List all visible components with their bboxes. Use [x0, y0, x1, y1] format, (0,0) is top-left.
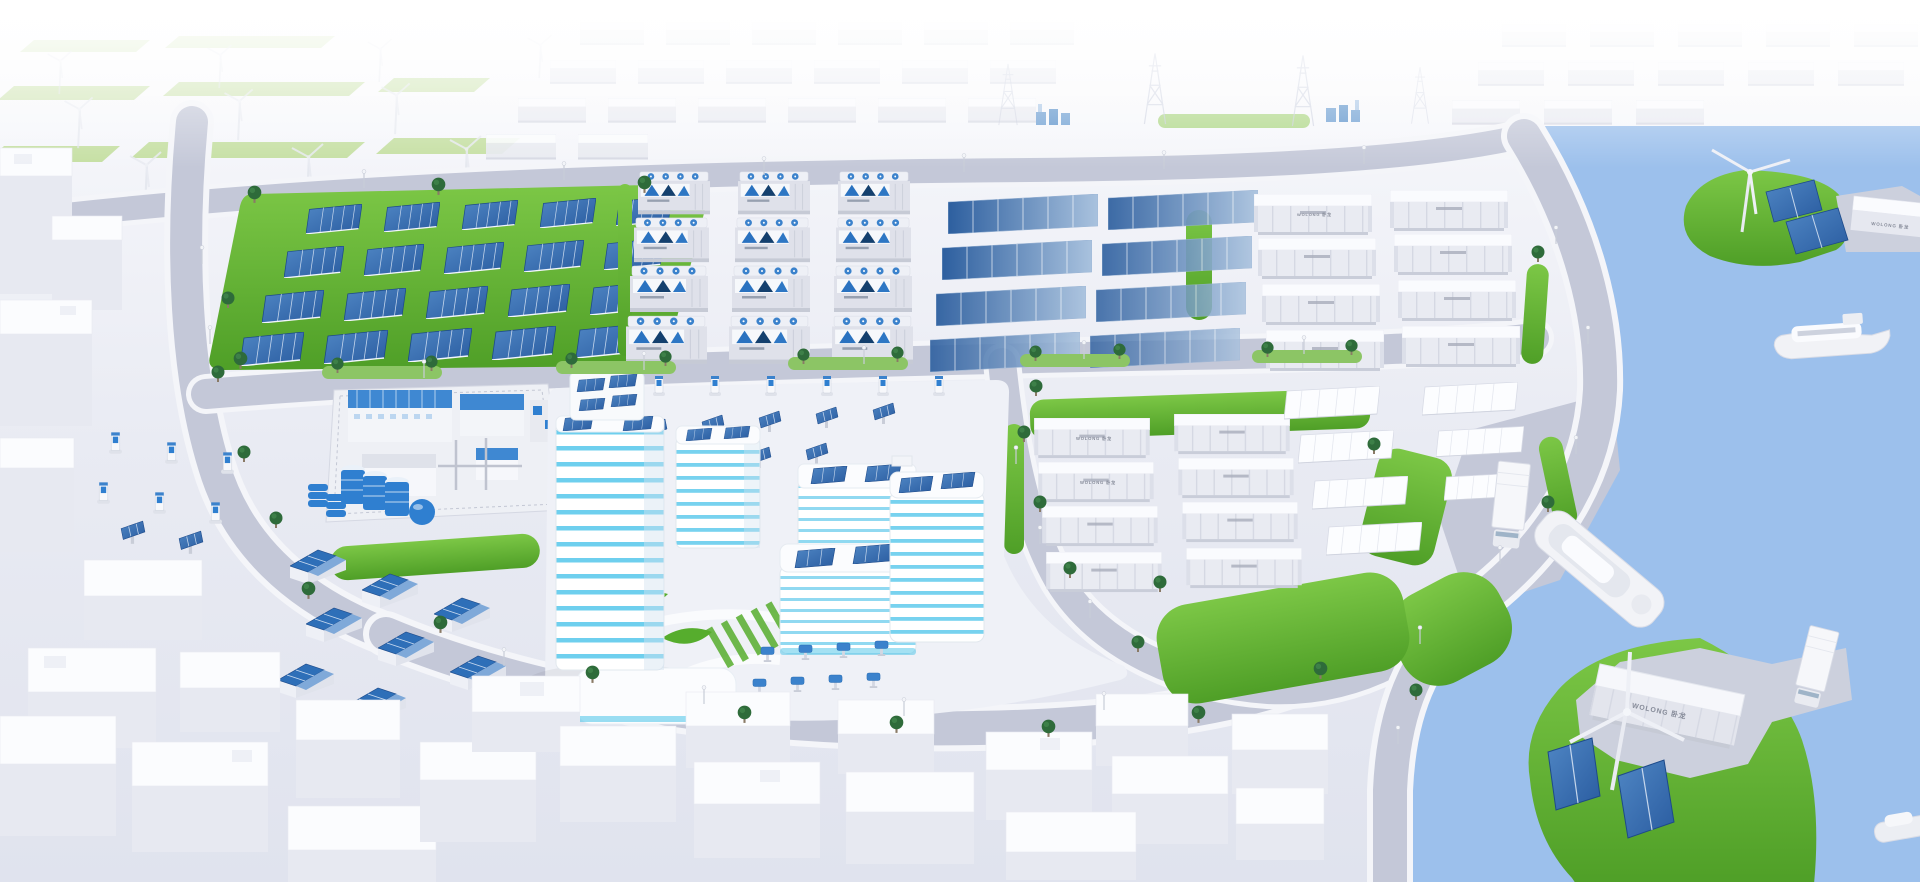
smart-energy-city-render: WOLONG 卧龙 WOLONG 卧龙 WOLONG 卧龙: [0, 0, 1920, 882]
solar-panel: [384, 202, 440, 232]
blue-roof-hut: [476, 448, 518, 480]
battery-container: [838, 172, 910, 214]
solar-panel-blank: [1326, 522, 1422, 555]
rooftop-solar-panel: [609, 374, 637, 388]
ev-charger: [709, 376, 721, 396]
solar-panel: [426, 286, 488, 319]
rooftop-solar-panel: [941, 472, 975, 489]
container-label: WOLONG 卧龙: [1076, 435, 1112, 442]
storage-container: [1262, 284, 1380, 325]
solar-panel: [344, 288, 406, 321]
ev-charger: [109, 432, 122, 453]
solar-panel: [444, 242, 504, 274]
storage-container: [1398, 280, 1516, 321]
ev-charger: [97, 482, 110, 503]
battery-storage-yard: [618, 172, 913, 364]
industrial-plant: [308, 384, 564, 525]
battery-container: [634, 218, 709, 262]
tower-b: [676, 426, 760, 548]
rooftop-solar-panel: [577, 378, 605, 392]
scene-canvas: WOLONG 卧龙 WOLONG 卧龙 WOLONG 卧龙: [0, 0, 1920, 882]
horizon-haze: [0, 0, 1920, 168]
gas-dome: [409, 499, 435, 525]
solar-panel: [492, 326, 556, 360]
battery-container: [735, 218, 810, 262]
solar-panel: [524, 240, 584, 272]
storage-container: [1174, 414, 1289, 454]
solar-panel-blank: [1436, 426, 1524, 456]
container-label: WOLONG 卧龙: [1297, 211, 1332, 217]
battery-container: [836, 218, 911, 262]
rooftop-solar-panel: [724, 426, 750, 439]
ev-charger: [877, 376, 889, 396]
storage-container: [1402, 326, 1520, 367]
battery-container: [732, 266, 810, 312]
storage-container: [1046, 552, 1161, 592]
solar-panel: [408, 328, 472, 362]
solar-panel: [462, 200, 518, 230]
storage-container: [1394, 234, 1512, 275]
solar-panel: [364, 244, 424, 276]
storage-container: [1178, 458, 1293, 498]
ev-charger: [933, 376, 945, 396]
rooftop-solar-panel: [579, 398, 605, 411]
solar-panel: [508, 284, 570, 317]
rooftop-solar-panel: [899, 476, 933, 493]
container-label: WOLONG 卧龙: [1080, 479, 1116, 486]
battery-container: [834, 266, 912, 312]
solar-panel: [540, 198, 596, 228]
solar-panel-blank: [1312, 476, 1408, 509]
rooftop-solar-panel: [811, 466, 847, 484]
solar-panel: [284, 246, 344, 278]
battery-container: [738, 172, 810, 214]
storage-container: [1182, 502, 1297, 542]
ev-charger: [153, 492, 166, 513]
storage-container: [1258, 238, 1376, 279]
storage-container: [1042, 506, 1157, 546]
rooftop-solar-panel: [686, 428, 712, 441]
ev-charger: [821, 376, 833, 396]
solar-panel: [324, 330, 388, 364]
solar-panel-blank: [1422, 382, 1518, 415]
solar-panel: [262, 290, 324, 323]
solar-panel: [306, 204, 362, 234]
battery-container: [630, 266, 708, 312]
solar-panel: [240, 332, 304, 366]
rooftop-solar-panel: [853, 544, 893, 564]
rooftop-solar-panel: [795, 548, 835, 568]
ev-charger: [221, 452, 234, 473]
ev-charger: [209, 502, 222, 523]
ev-charger: [165, 442, 178, 463]
storage-container: [1390, 190, 1508, 231]
factory-annex: [460, 394, 558, 442]
ev-charger: [653, 376, 665, 396]
rooftop-solar-panel: [611, 394, 637, 407]
ev-charger: [765, 376, 777, 396]
factory-hall: [348, 390, 452, 442]
solar-panel-blank: [1284, 386, 1380, 419]
block-e: [890, 472, 984, 642]
dome-highlight: [413, 504, 423, 510]
storage-container: [1186, 548, 1301, 588]
